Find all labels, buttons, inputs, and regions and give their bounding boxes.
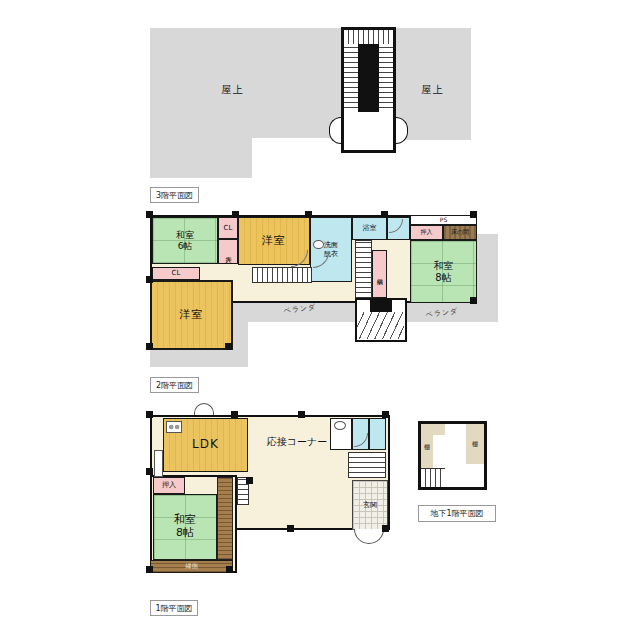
pillar xyxy=(470,211,477,218)
f3-rooftop-left-label: 屋上 xyxy=(203,84,263,96)
f3-caption: 3階平面図 xyxy=(150,187,199,203)
f1-kitchen-counter xyxy=(154,450,163,477)
f1-entrance-door-arc xyxy=(354,529,384,544)
f1-caption: 1階平面図 xyxy=(150,600,198,616)
pillar xyxy=(382,411,389,418)
pillar xyxy=(146,343,153,350)
pillar xyxy=(146,566,153,573)
f3-door-left xyxy=(329,117,341,144)
f3-stair-treads-left xyxy=(344,44,358,112)
f2-stair-winders xyxy=(357,312,404,339)
pillar xyxy=(231,411,238,418)
f2-washitsu-8: 和室 8帖 xyxy=(410,240,477,303)
pillar xyxy=(381,211,388,218)
pillar xyxy=(298,411,305,418)
b1-shelf-left-label: 棚 xyxy=(421,444,433,451)
pillar xyxy=(287,525,294,532)
f1-toilet-2 xyxy=(369,418,386,450)
f2-yokushitsu: 浴室 xyxy=(352,217,387,240)
floor-plan-sheet: 屋上 屋上 3階平面図 和室 6帖 CL 押入 洋室 洗面 脱衣 浴室 PS 押… xyxy=(0,0,640,640)
f2-sink-icon xyxy=(313,240,324,249)
f1-washbasin-icon xyxy=(334,421,346,430)
f1-stairs xyxy=(348,452,386,478)
f2-veranda-below xyxy=(150,348,248,367)
f2-oshiire-left: 押入 xyxy=(218,239,238,264)
b1-room: 棚 棚 xyxy=(418,421,487,490)
pillar xyxy=(146,276,153,283)
f2-oshiire-right: 押入 xyxy=(410,225,443,240)
pillar xyxy=(382,525,389,532)
f2-washitsu-6: 和室 6帖 xyxy=(152,217,218,264)
pillar xyxy=(146,411,153,418)
f2-stairs-mid xyxy=(355,240,372,298)
f2-closet-left: CL xyxy=(152,267,200,280)
f3-rooftop-left-extension xyxy=(150,138,252,178)
pillar xyxy=(146,211,153,218)
f2-closet-top: CL xyxy=(218,217,238,239)
f3-stair-core xyxy=(358,44,379,112)
b1-stairs xyxy=(421,468,445,487)
f1-kitchen-icon xyxy=(166,421,182,433)
f2-stairwell-lower xyxy=(355,298,407,342)
f1-reception-label: 応接コーナー xyxy=(252,436,342,448)
pillar xyxy=(146,468,153,475)
f2-veranda-right-strip xyxy=(477,234,498,322)
f2-shuno: 収納 xyxy=(372,250,387,298)
f3-stair-treads-right xyxy=(379,44,393,112)
f2-veranda-corner xyxy=(233,303,248,351)
pillar xyxy=(470,297,477,304)
f1-engawa-bottom: 縁側 xyxy=(150,560,233,573)
f3-stairwell xyxy=(341,27,396,153)
f3-stair-treads-top xyxy=(344,30,393,44)
b1-caption: 地下1階平面図 xyxy=(418,505,496,522)
f3-rooftop-left xyxy=(150,28,343,138)
pillar xyxy=(226,566,233,573)
f1-oshiire: 押入 xyxy=(153,477,185,494)
pillar xyxy=(305,211,312,218)
pillar xyxy=(225,343,232,350)
f2-stair-core xyxy=(370,300,392,312)
f1-washitsu-8: 和室 8帖 xyxy=(153,494,217,560)
b1-shelf-right-label: 棚 xyxy=(466,441,484,448)
f1-door-arc-top xyxy=(194,403,214,415)
f1-genkan: 玄関 xyxy=(352,480,388,530)
pillar xyxy=(232,211,239,218)
f2-yoshitsu-left: 洋室 xyxy=(150,280,233,350)
f2-stairs-upper xyxy=(252,267,312,283)
f2-tokonoma: 床の間 xyxy=(443,225,477,240)
f2-pipe-space: PS xyxy=(410,215,477,225)
f2-caption: 2階平面図 xyxy=(150,377,199,393)
f3-rooftop-right-label: 屋上 xyxy=(403,84,463,96)
pillar xyxy=(246,477,253,484)
f1-engawa-vertical xyxy=(217,477,233,560)
f2-senmen-datsui: 洗面 脱衣 xyxy=(310,217,352,282)
